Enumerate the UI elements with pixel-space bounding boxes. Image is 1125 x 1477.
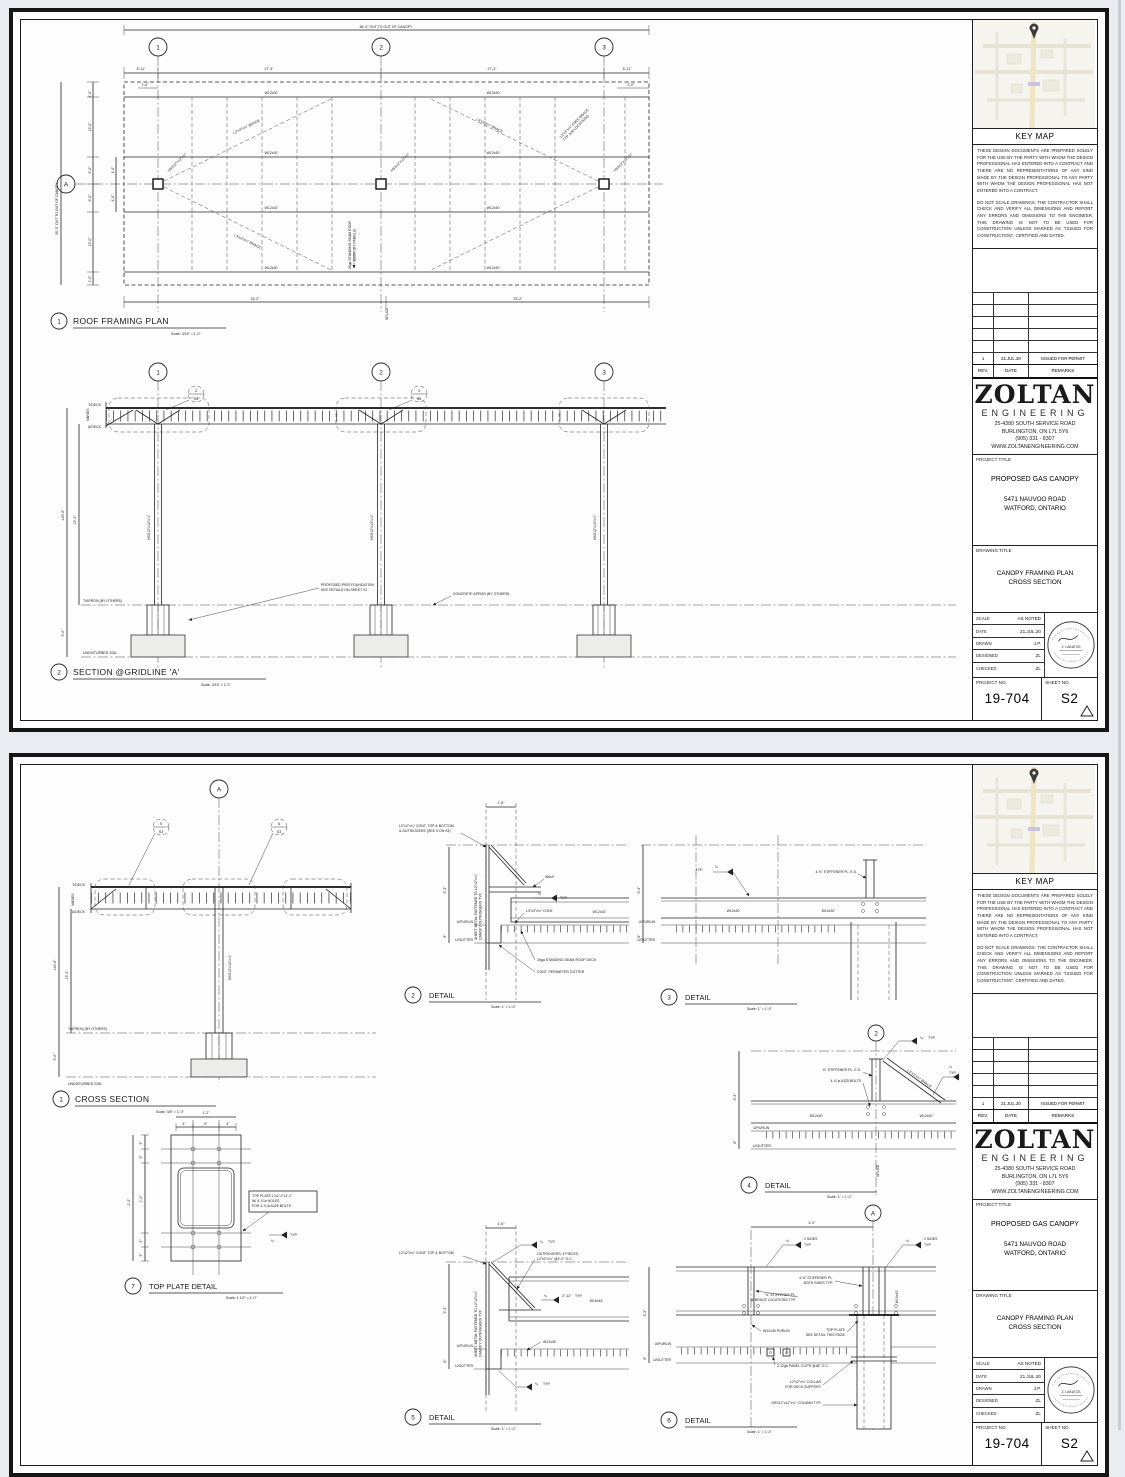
dim-33-2-left: 33'-2": [251, 297, 261, 301]
company-phone: (905) 331 - 8307: [973, 436, 1097, 444]
company-logo-block: ZOLTAN ENGINEERING 25-4380 SOUTH SERVICE…: [973, 1124, 1097, 1200]
splice-label: SPLICE: [385, 307, 389, 320]
company-logo-block: ZOLTAN ENGINEERING 25-4380 SOUTH SERVICE…: [973, 379, 1097, 455]
beam-label: W12x30: [265, 206, 278, 210]
key-map-image: [973, 20, 1095, 128]
collar-note-line1: L2"x2"x¼" COLLAR: [790, 1380, 821, 1384]
dim-footing-depth: 5'-0": [61, 629, 65, 637]
weld-size: ¼: [535, 1382, 538, 1386]
checked-value: ZL: [1036, 1411, 1041, 1416]
title-block: KEY MAP THESE DESIGN DOCUMENTS ARE PREPA…: [972, 20, 1097, 720]
revision-blank-rows: [973, 249, 1097, 352]
column-label: HSS12"x12"x¼": [613, 152, 634, 173]
company-website: WWW.ZOLTANENGINEERING.COM: [973, 1189, 1097, 1197]
u-purlin-label: U/PURLIN: [639, 920, 656, 924]
date-header: DATE: [994, 1110, 1029, 1122]
revision-remarks: ISSUED FOR PERMIT: [1029, 353, 1097, 364]
weld-size: ¼: [949, 1065, 952, 1069]
weld-size: ¼: [920, 1036, 923, 1040]
drawn-label: DRAWN: [976, 1386, 992, 1391]
project-number-value: 19-704: [973, 691, 1041, 706]
beam-label: W12x30: [920, 1114, 933, 1118]
dim-end-bay-right: 5'-11": [623, 67, 632, 71]
project-title: PROPOSED GAS CANOPY: [973, 476, 1097, 483]
dim-overall-height: ±16'-6": [61, 509, 65, 521]
top-plate-note-line2: W/ 4-⅞"ø HOLES: [252, 1199, 280, 1203]
dim-left-6-0-bottom: 6'-0": [88, 194, 92, 202]
grid-bubble-2: 2: [379, 45, 383, 52]
weld-typ: TYP.: [949, 1071, 956, 1075]
pier-and-footing: [577, 605, 631, 657]
weld-typ: TYP.: [924, 1243, 931, 1247]
key-map-image: [973, 765, 1095, 873]
dim-3-3: 3'-3": [443, 886, 447, 894]
detail-5: 1'-6" L2"x2"x¼" CONT. TOP & BOTTOM ¼ TYP…: [399, 1222, 629, 1431]
designed-value: ZL: [1036, 1398, 1041, 1403]
page2-drawings: A 5 S3 6 S3: [21, 765, 975, 1467]
checked-label: CHECKED: [976, 1411, 996, 1416]
company-logo: ZOLTAN: [973, 382, 1097, 407]
designed-label: DESIGNED: [976, 1398, 998, 1403]
dim-overall-height: ±16'-6": [53, 959, 57, 971]
dim-3: 3": [139, 1253, 143, 1257]
detail-3-title: 3 DETAIL Scale: 1" = 1'-0": [661, 989, 797, 1011]
u-gutter-label: U/GUTTER: [455, 1364, 473, 1368]
top-of-deck-label: T/DECK: [88, 403, 102, 407]
company-website: WWW.ZOLTANENGINEERING.COM: [973, 444, 1097, 452]
dim-left-13-0-top: 13'-0": [88, 122, 92, 132]
date-row: DATE21.JUL.20: [973, 1370, 1044, 1382]
scale-value: AS NOTED: [1018, 616, 1041, 621]
beam-label: W12x30: [810, 1114, 823, 1118]
brace-label: L3"x3"x¼" BRACE: [234, 233, 262, 250]
dim-2-0: 2'-0": [628, 83, 636, 87]
drawn-row: DRAWNJ.P.: [973, 1383, 1044, 1395]
stamp-engineer-name: Z. LAKATOS: [1061, 1390, 1081, 1394]
project-number-label: PROJECT NO.: [973, 678, 1041, 685]
revision-blank-rows: [973, 994, 1097, 1097]
panel-clips-note: 2-12ga PANEL CLIPS @48" O.C.: [777, 1364, 829, 1368]
dim-bay-2: 27'-3": [488, 67, 498, 71]
gutter-note: CONT. PERIMETER GUTTER: [537, 970, 585, 974]
dim-3: 3": [139, 1155, 143, 1159]
weld-typ: TYP.: [696, 868, 703, 872]
stiffener-brace-note-line1: ⅜" STIFFENER PL.: [765, 1293, 796, 1297]
revision-table-header: REV.DATEREMARKS: [973, 364, 1097, 379]
company-logo-subtitle: ENGINEERING: [973, 1153, 1097, 1163]
grid-bubble-1: 1: [156, 370, 160, 377]
scale-label: SCALE: [976, 1361, 990, 1366]
u-purlin-label: U/PURLIN: [457, 1344, 474, 1348]
project-number-cell: PROJECT NO. 19-704: [973, 1423, 1042, 1465]
revision-remarks: ISSUED FOR PERMIT: [1029, 1098, 1097, 1109]
detail-2: 1'-6" L2"x2"x¼" CONT. TOP & BOTTOM & OUT…: [399, 801, 629, 1009]
grid-bubble-a: A: [64, 182, 69, 189]
dim-8: 8": [643, 1356, 647, 1360]
key-map: [973, 20, 1097, 129]
rev-header: REV.: [973, 365, 994, 377]
drawing-title-line2: CROSS SECTION: [973, 1323, 1097, 1332]
weld-typ: TYP.: [290, 1233, 297, 1237]
varies-label: VARIES: [86, 408, 90, 421]
weld-stitch: 2"-12": [562, 1294, 572, 1298]
section-title-scale: Scale: 3/16" = 1'-0": [201, 683, 231, 687]
u-gutter-label: U/GUTTER: [455, 938, 473, 942]
foundation-note-line1: PROPOSED PIER FOUNDATION: [321, 583, 374, 587]
dim-3-3: 3'-3": [643, 1309, 647, 1317]
dim-left-1-0-bottom: 1'-0": [88, 275, 92, 283]
dim-left-13-0-bottom: 13'-0": [88, 237, 92, 247]
sheet-number-block: PROJECT NO. 19-704 SHEET NO. S2: [973, 678, 1097, 720]
beam-label: W12x30: [487, 206, 500, 210]
detail-ref-number: 5: [160, 822, 162, 826]
project-number-label: PROJECT NO.: [973, 1423, 1041, 1430]
disclaimer-paragraph-1: THESE DESIGN DOCUMENTS ARE PREPARED SOLE…: [977, 893, 1093, 940]
section-gridline-a: 1 2 3 2 S3 3 S3: [51, 363, 956, 687]
title-scale: Scale: 1" = 1'-0": [491, 1427, 517, 1431]
plan-overall-depth-dim: 30'-0" OUT TO OUT OF CANOPY: [55, 182, 59, 235]
weld-size: ¼: [544, 1294, 547, 1298]
detail-4: 2 3'-3" 8" W12x30 W12x30 U/PURLIN U/GUTT…: [733, 1025, 959, 1199]
title-text: DETAIL: [765, 1181, 791, 1190]
title-number: 4: [747, 1183, 751, 1190]
detail-ref-sheet: S3: [277, 830, 281, 834]
grid-bubble-2: 2: [379, 370, 383, 377]
revision-triangle-icon: [1080, 705, 1094, 717]
title-text: CROSS SECTION: [75, 1094, 149, 1104]
dim-6: 6": [204, 1122, 208, 1126]
grid-bubble-3: 3: [602, 45, 606, 52]
revision-triangle-icon: [1080, 1450, 1094, 1462]
dim-8: 8": [443, 934, 447, 938]
checked-value: ZL: [1036, 666, 1041, 671]
section-title: 2 SECTION @GRIDLINE 'A' Scale: 3/16" = 1…: [51, 664, 266, 687]
revision-row: 121.JUL.20ISSUED FOR PERMIT: [973, 1097, 1097, 1109]
cont-angle-note-line2: & OUTRIGGERS (SEE 5 ON S3): [399, 829, 451, 833]
checked-row: CHECKEDZL: [973, 663, 1044, 675]
sheet-number-label: SHEET NO.: [1042, 1423, 1097, 1430]
top-plate-note-line3: FOR 4-¾"ø A325 BOLTS: [252, 1204, 292, 1208]
weld-size: ¼: [715, 865, 718, 869]
key-map: [973, 765, 1097, 874]
column-label: HSS12"x12"x¼": [593, 514, 597, 540]
title-number: 2: [411, 993, 415, 1000]
dim-1-6: 1'-6": [498, 801, 506, 805]
detail-3: W12x30 W12x30 4-⅜" STIFFENER PL. E.S. TY…: [637, 835, 926, 1011]
dim-8: 8": [637, 934, 641, 938]
company-phone: (905) 331 - 8307: [973, 1181, 1097, 1189]
disclaimer-paragraph-2: DO NOT SCALE DRAWINGS. THE CONTRACTOR SH…: [977, 945, 1093, 985]
scale-row: SCALEAS NOTED: [973, 1358, 1044, 1370]
dim-plate-width: 1'-2": [203, 1111, 211, 1115]
apron-note: CONCRETE APRON (BY OTHERS): [433, 592, 509, 605]
drawn-row: DRAWNJ.P.: [973, 638, 1044, 650]
detail-ref-sheet: S3: [194, 397, 198, 401]
sheet-number-value: S2: [1042, 691, 1097, 706]
designed-row: DESIGNEDZL: [973, 650, 1044, 662]
detail-reference-bubble: 6 S3: [249, 819, 287, 885]
deck-note: 26ga STANDING SEAM ROOF DECK: [537, 958, 597, 962]
sheet-metal-note-line2: CANOPY OUTRIGGERS TYP.: [479, 1309, 483, 1357]
title-text: TOP PLATE DETAIL: [149, 1282, 217, 1291]
column-label: HSS12"x12"x¼": [228, 954, 232, 980]
project-title: PROPOSED GAS CANOPY: [973, 1221, 1097, 1228]
purlin-label: W12x30: [543, 1340, 556, 1344]
section-title-text: SECTION @GRIDLINE 'A': [73, 667, 180, 677]
company-logo-subtitle: ENGINEERING: [973, 408, 1097, 418]
beam-label: W12x30: [265, 151, 278, 155]
cross-section: A 5 S3 6 S3: [53, 780, 376, 1114]
company-address-line1: 25-4380 SOUTH SERVICE ROAD: [973, 1166, 1097, 1174]
beam-label: W12x30: [727, 909, 740, 913]
detail-ref-number: 6: [278, 822, 280, 826]
stiffener-both-sides-note-line2: BOTH SIDES TYP.: [804, 1281, 834, 1285]
detail-ref-sheet: S3: [159, 830, 163, 834]
top-of-deck-label: T/DECK: [72, 883, 86, 887]
detail-2-title: 2 DETAIL Scale: 1" = 1'-0": [405, 987, 541, 1009]
weld-size: ¼: [906, 1239, 909, 1243]
sheet-metal-note-line2: CANOPY OUTRIGGERS TYP.: [479, 892, 483, 940]
splice-label: SPLICE: [876, 1164, 880, 1177]
grid-bubble-a: A: [871, 1211, 876, 1218]
brace-label: L3"x3"x¼" BRACE: [906, 1069, 932, 1090]
dim-end-bay-left: 5'-11": [137, 67, 146, 71]
drawn-value: J.P.: [1034, 641, 1041, 646]
date-row: DATE21.JUL.20: [973, 625, 1044, 637]
column-label: HSS12"x12"x¼": [390, 152, 411, 173]
title-text: DETAIL: [429, 991, 455, 1000]
remarks-header: REMARKS: [1029, 365, 1097, 377]
pdf-canvas: { "c": { "beam": "W12x30", "girder": "W1…: [0, 0, 1125, 1430]
top-of-apron-label: T/APRON (BY OTHERS): [68, 1027, 107, 1031]
foundation-note-line2: SEE DETAILS ON SHEET S1: [321, 588, 367, 592]
dim-33-2-right: 33'-2": [514, 297, 524, 301]
outriggers-note-line2: L2"x2"x¼" @4'-0" O.C.: [537, 1257, 573, 1261]
weld-typ: TYP.: [543, 1382, 550, 1386]
outriggers-note-line1: OUTRIGGERS: 4 PIECES: [537, 1252, 579, 1256]
weld-size: ¼: [271, 1239, 274, 1243]
revision-number: 1: [973, 353, 994, 364]
detail-5-title: 5 DETAIL Scale: 1" = 1'-0": [405, 1409, 541, 1431]
date-label: DATE: [976, 1374, 987, 1379]
stamp-engineer-name: Z. LAKATOS: [1061, 645, 1081, 649]
w6x9-label: W6x9: [545, 875, 554, 879]
designed-value: ZL: [1036, 653, 1041, 658]
dim-4-0: 4'-0": [809, 1221, 817, 1225]
designed-label: DESIGNED: [976, 653, 998, 658]
sheet-metal-note-line1: SHEET METAL FASTENED TO L2"x2"x¼": [474, 873, 478, 940]
weld-typ: TYP.: [804, 1243, 811, 1247]
drawn-value: J.P.: [1034, 1386, 1041, 1391]
stiffener-note: ⅜" STIFFENER PL. E.S.: [823, 1068, 861, 1072]
detail-4-title: 4 DETAIL Scale: 1" = 1'-0": [741, 1177, 877, 1199]
column-label: HSS12"x12"x¼": [147, 514, 151, 540]
key-map-label: KEY MAP: [973, 874, 1097, 890]
deck-note: 26ga STANDING SEAM ROOF DECK (BY PANELS): [348, 221, 357, 270]
project-address-line2: WATFORD, ONTARIO: [973, 1249, 1097, 1258]
revision-date: 21.JUL.20: [994, 1098, 1029, 1109]
dim-3: 3": [139, 1239, 143, 1243]
engineer-stamp: Z. LAKATOS: [1045, 1358, 1097, 1422]
dim-4: 4": [226, 1122, 230, 1126]
grid-bubble-a: A: [217, 787, 222, 794]
section-title-number: 2: [57, 670, 61, 677]
grid-bubble-2: 2: [874, 1031, 878, 1038]
weld-2-sides: 2 SIDES: [924, 1237, 938, 1241]
drawing-meta-block: SCALEAS NOTED DATE21.JUL.20 DRAWNJ.P. DE…: [973, 613, 1097, 678]
knee-brace-note: L3"x3"x¼" KNEE BRACE TYP. (x8) LOCATIONS: [559, 107, 593, 141]
title-scale: Scale: 1 1/2" = 1'-0": [226, 1296, 257, 1300]
revision-table-header: REV.DATEREMARKS: [973, 1109, 1097, 1124]
beam-label: W12x30: [487, 266, 500, 270]
title-number: 3: [667, 995, 671, 1002]
drawn-label: DRAWN: [976, 641, 992, 646]
dim-3-3: 3'-3": [733, 1093, 737, 1101]
weld-size: ¼: [540, 1240, 543, 1244]
sheet-frame: A 5 S3 6 S3: [20, 764, 1098, 1466]
dim-left-6-0-top: 6'-0": [88, 166, 92, 174]
plan-title-text: ROOF FRAMING PLAN: [73, 316, 169, 326]
cross-section-title: 1 CROSS SECTION Scale: 3/8" = 1'-0": [53, 1091, 216, 1114]
title-scale: Scale: 3/8" = 1'-0": [156, 1110, 185, 1114]
project-title-label: PROJECT TITLE: [973, 455, 1097, 462]
apron-note-text: CONCRETE APRON (BY OTHERS): [453, 592, 509, 596]
project-address-line1: 5471 NAUVOO ROAD: [973, 495, 1097, 504]
meta-rows: SCALEAS NOTED DATE21.JUL.20 DRAWNJ.P. DE…: [973, 613, 1045, 677]
u-gutter-label: U/GUTTER: [753, 1144, 771, 1148]
weld-size: ¼: [538, 892, 541, 896]
date-value: 21.JUL.20: [1020, 629, 1041, 634]
title-number: 6: [667, 1418, 671, 1425]
dim-left-1-0-top: 1'-0": [88, 90, 92, 98]
title-text: DETAIL: [429, 1413, 455, 1422]
beam-label: W12x30: [593, 910, 606, 914]
designed-row: DESIGNEDZL: [973, 1395, 1044, 1407]
revision-row: 121.JUL.20ISSUED FOR PERMIT: [973, 352, 1097, 364]
weld-typ: TYP.: [548, 1240, 555, 1244]
dim-bay-1: 27'-3": [265, 67, 275, 71]
weld-size: ¼: [786, 1239, 789, 1243]
dim-3: 3": [139, 1141, 143, 1145]
detail-6: A 4'-0" U/PURLIN U/GUTTER 3'-3" 8": [643, 1205, 938, 1434]
beam-label: W12x30: [487, 151, 500, 155]
title-scale: Scale: 1" = 1'-0": [827, 1195, 853, 1199]
u-gutter-label: U/GUTTER: [637, 938, 655, 942]
title-block: KEY MAP THESE DESIGN DOCUMENTS ARE PREPA…: [972, 765, 1097, 1465]
project-address-line2: WATFORD, ONTARIO: [973, 504, 1097, 513]
page-edge-shadow: [1118, 0, 1121, 1430]
page1-drawings: 66'-4" OUT TO OUT OF CANOPY 1 2 3 5'-11"…: [21, 20, 975, 722]
stiffener-note: 4-⅜" STIFFENER PL. E.S.: [815, 870, 857, 874]
meta-rows: SCALEAS NOTED DATE21.JUL.20 DRAWNJ.P. DE…: [973, 1358, 1045, 1422]
drawing-title-line1: CANOPY FRAMING PLAN: [973, 569, 1097, 578]
beam-label: W12x30: [265, 266, 278, 270]
title-number: 1: [59, 1097, 63, 1104]
undisturbed-soil-label: UNDISTURBED SOIL: [83, 651, 117, 655]
roof-framing-plan: 66'-4" OUT TO OUT OF CANOPY 1 2 3 5'-11"…: [51, 25, 663, 336]
weld-2-sides: 2 SIDES: [804, 1237, 818, 1241]
scale-label: SCALE: [976, 616, 990, 621]
u-purlin-label: U/PURLIN: [457, 920, 474, 924]
collar-note-line2: FOR DECK SUPPORT: [785, 1385, 822, 1389]
u-purlin-label: U/PURLIN: [655, 1342, 672, 1346]
dim-4: 4": [182, 1122, 186, 1126]
girder-label: W16x45: [590, 1299, 603, 1303]
disclaimer-paragraph-1: THESE DESIGN DOCUMENTS ARE PREPARED SOLE…: [977, 148, 1093, 195]
grid-bubble-3: 3: [602, 370, 606, 377]
top-plate-detail: 1'-2" 4" 6" 4" 2'-2" 3" 3" 1'-4" 3" 3": [125, 1111, 317, 1300]
revision-date: 21.JUL.20: [994, 353, 1029, 364]
deck-note-line1: 26ga STANDING SEAM ROOF: [348, 221, 352, 270]
deck-note-line2: DECK (BY PANELS): [353, 229, 357, 261]
project-number-value: 19-704: [973, 1436, 1041, 1451]
title-scale: Scale: 1" = 1'-0": [491, 1005, 517, 1009]
varies-label: VARIES: [71, 893, 75, 906]
sheet-number-block: PROJECT NO. 19-704 SHEET NO. S2: [973, 1423, 1097, 1465]
sheet-metal-note-line1: SHEET METAL FASTENED TO L2"x2"x¼": [474, 1290, 478, 1357]
plan-title: 1 ROOF FRAMING PLAN Scale: 3/16" = 1'-0": [51, 313, 226, 336]
detail-ref-number: 2: [195, 389, 197, 393]
project-title-label: PROJECT TITLE: [973, 1200, 1097, 1207]
dim-1-4: 1'-4": [139, 1195, 143, 1203]
company-logo: ZOLTAN: [973, 1127, 1097, 1152]
cont-angle-note-line1: L2"x2"x¼" CONT. TOP & BOTTOM: [399, 824, 454, 828]
key-map-label: KEY MAP: [973, 129, 1097, 145]
drawing-title-label: DRAWING TITLE: [973, 1291, 1097, 1298]
project-title-block: PROJECT TITLE PROPOSED GAS CANOPY 5471 N…: [973, 1200, 1097, 1291]
revision-number: 1: [973, 1098, 994, 1109]
u-gutter-label: U/GUTTER: [653, 1358, 671, 1362]
knee-brace-note-line1: L3"x3"x¼" KNEE BRACE: [559, 107, 590, 138]
pier-and-footing: [131, 605, 185, 657]
dim-3-3: 3'-3": [637, 886, 641, 894]
title-scale: Scale: 1" = 1'-0": [747, 1430, 773, 1434]
pier-and-footing: [354, 605, 408, 657]
scale-row: SCALEAS NOTED: [973, 613, 1044, 625]
title-text: DETAIL: [685, 993, 711, 1002]
detail-reference-bubble: 5 S3: [129, 819, 169, 885]
sheet-number-cell: SHEET NO. S2: [1042, 678, 1097, 720]
dim-clear-height: 13'-4": [73, 515, 77, 525]
project-title-block: PROJECT TITLE PROPOSED GAS CANOPY 5471 N…: [973, 455, 1097, 546]
dim-clear-height: 13'-4": [65, 970, 69, 980]
sheet-metal-note: SHEET METAL FASTENED TO L2"x2"x¼" CANOPY…: [474, 1290, 483, 1357]
dim-footing-depth: 5'-0": [53, 1053, 57, 1061]
undisturbed-soil-label: UNDISTURBED SOIL: [68, 1082, 102, 1086]
stiffener-brace-note-line2: @ BRACE LOCATIONS TYP.: [750, 1298, 796, 1302]
dim-plate-height: 2'-2": [127, 1198, 131, 1206]
column-label: HSS12"x12"x¼": [167, 152, 188, 173]
remarks-header: REMARKS: [1029, 1110, 1097, 1122]
sheet-number-cell: SHEET NO. S2: [1042, 1423, 1097, 1465]
l3-cont-label: L3"x3"x¼" CONT.: [526, 909, 554, 913]
drawing-title-block: DRAWING TITLE CANOPY FRAMING PLAN CROSS …: [973, 1291, 1097, 1358]
drawing-title-block: DRAWING TITLE CANOPY FRAMING PLAN CROSS …: [973, 546, 1097, 613]
title-scale: Scale: 1" = 1'-0": [747, 1007, 773, 1011]
date-value: 21.JUL.20: [1020, 1374, 1041, 1379]
beam-label: W12x30: [265, 91, 278, 95]
drawing-title-label: DRAWING TITLE: [973, 546, 1097, 553]
detail-reference-bubble: 3 S3: [389, 386, 427, 410]
u-purlin-label: U/PURLIN: [753, 1126, 770, 1130]
bolts-note: 4-¾"ø A325 BOLTS: [830, 1079, 861, 1083]
sheet-number-value: S2: [1042, 1436, 1097, 1451]
dim-left-4-0-bottom: 4'-0": [111, 194, 115, 202]
dim-left-4-0-top: 4'-0": [111, 166, 115, 174]
company-address-line2: BURLINGTON, ON L7L 5Y6: [973, 1174, 1097, 1182]
drawing-meta-block: SCALEAS NOTED DATE21.JUL.20 DRAWNJ.P. DE…: [973, 1358, 1097, 1423]
detail-ref-number: 3: [418, 389, 420, 393]
